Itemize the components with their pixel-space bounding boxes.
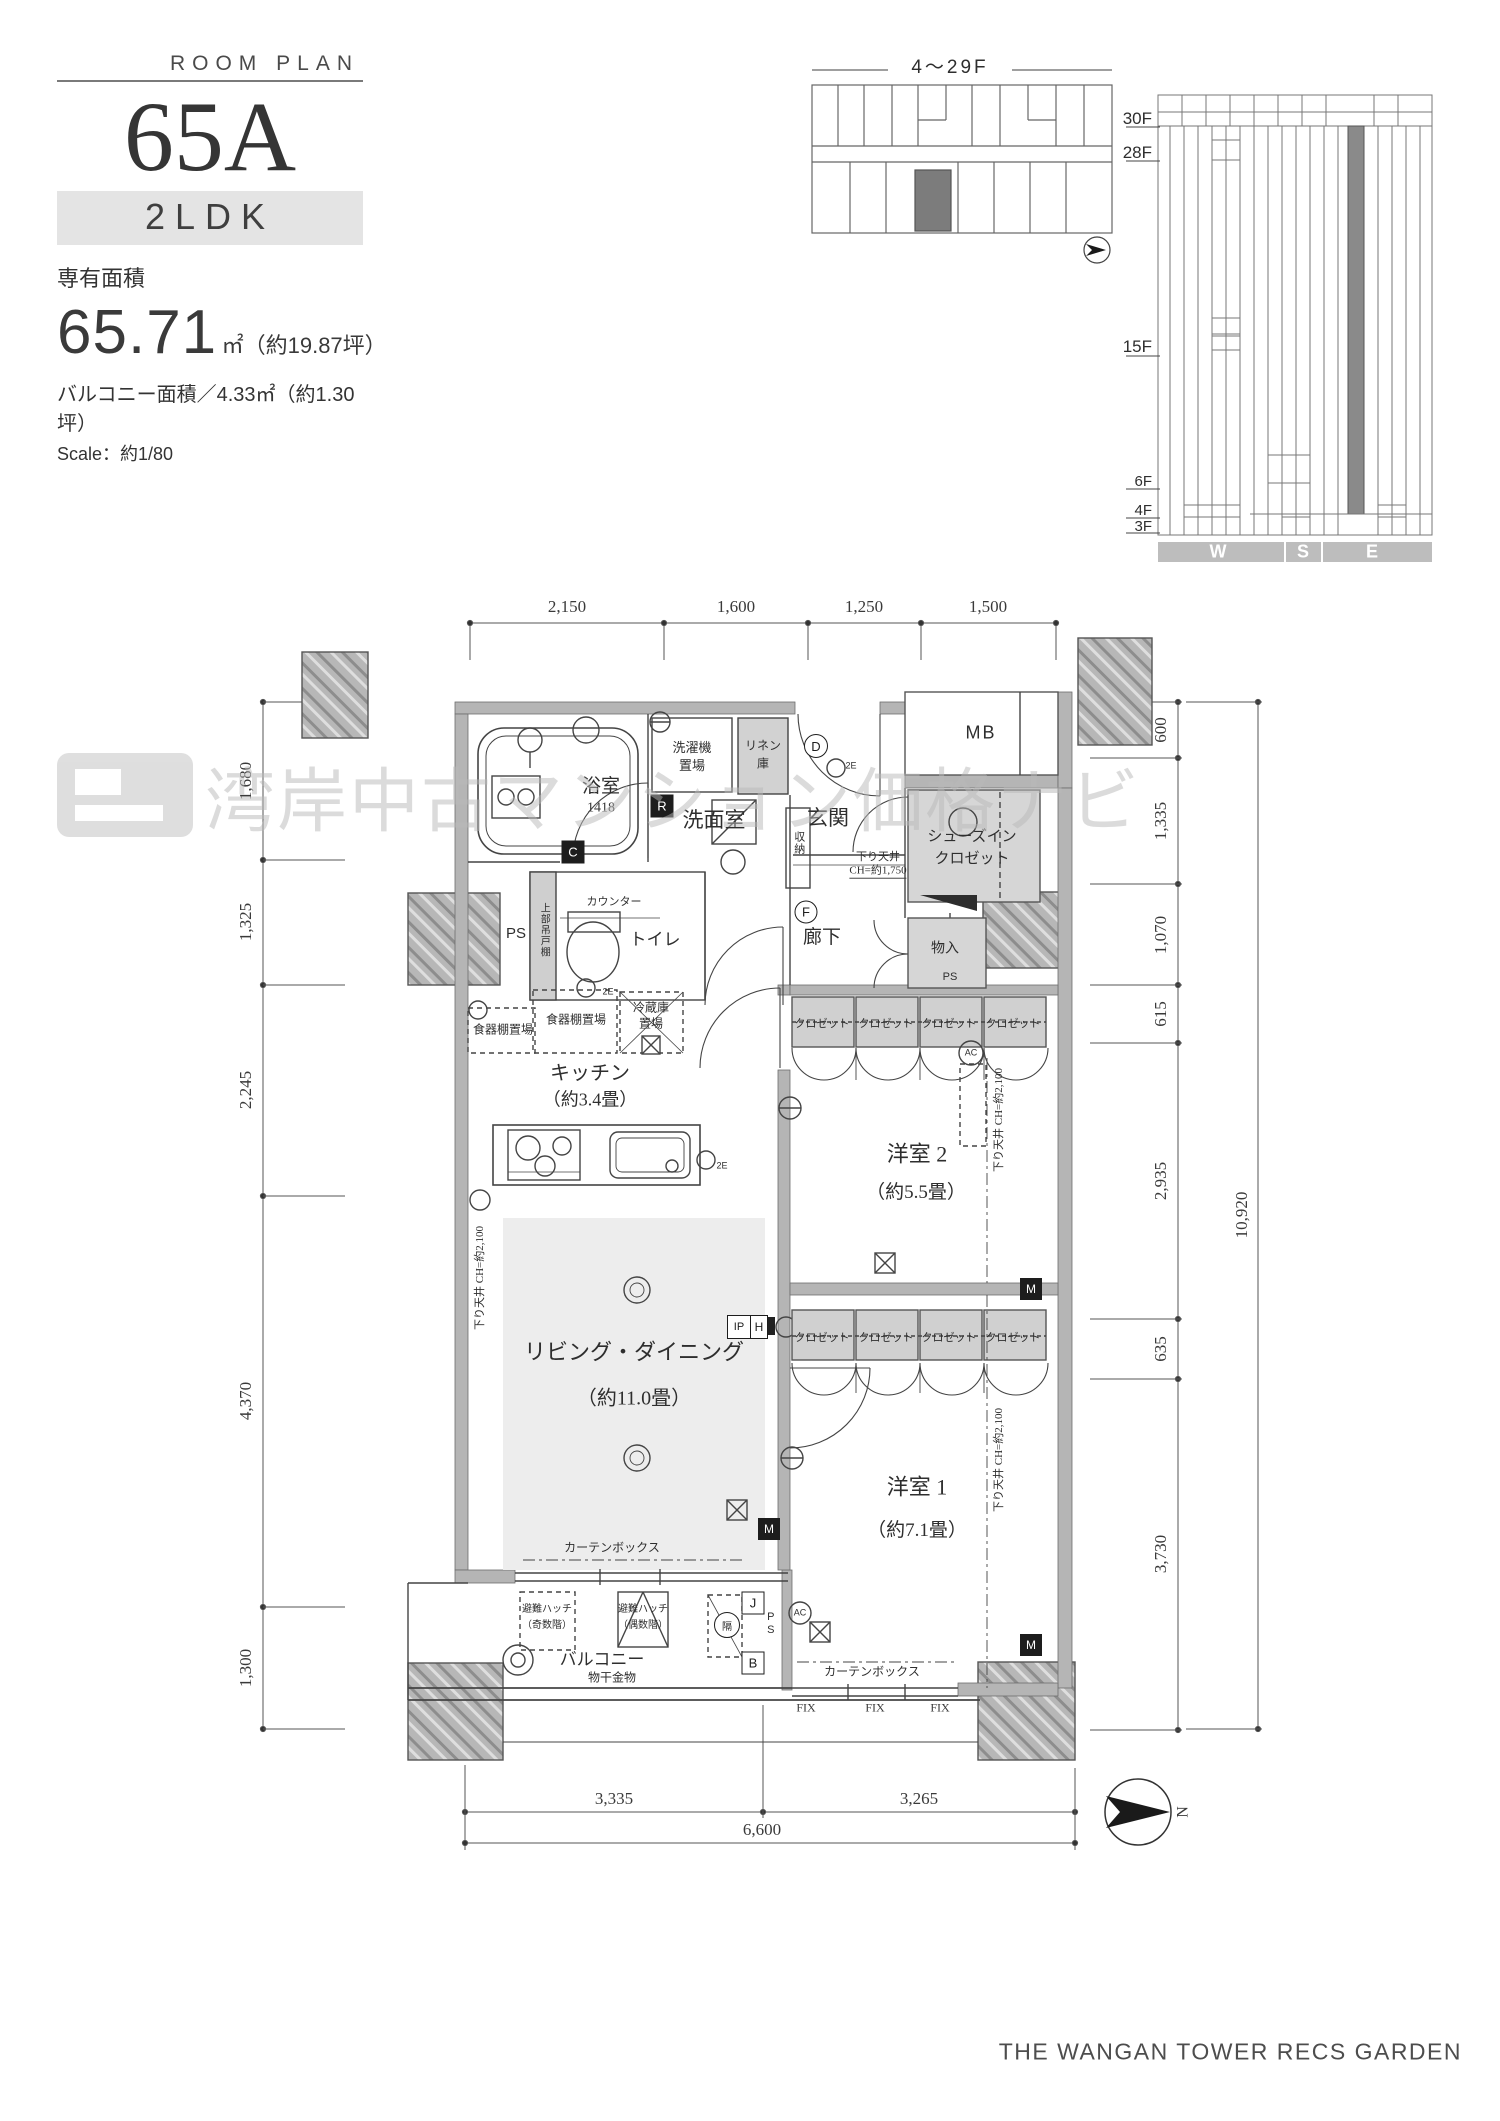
label-lowered-ceiling-2100-living: 下り天井 CH=約2,100 [475,1226,487,1330]
label-counter: カウンター [587,897,642,909]
scale-line: Scale：約1/80 [57,440,363,466]
label-lowered-ceiling-2100-bedroom1: 下り天井 CH=約2,100 [994,1408,1006,1512]
elevation-direction-e: E [1366,543,1378,562]
label-closet: クロゼット [922,1019,977,1031]
watermark-text: 湾岸中古マンション価格ナビ [205,746,1141,847]
label-lowered-ceiling-2100-bedroom2: 下り天井 CH=約2,100 [994,1068,1006,1172]
label-2e-toilet: 2E [602,987,613,996]
label-dish-shelf-1: 食器棚置場 [473,1024,533,1037]
key-plan-caption: 4～29F [911,58,988,78]
label-dish-shelf-2: 食器棚置場 [546,1014,606,1027]
dim-top-1: 2,150 [548,598,586,616]
label-curtain-box-bedroom1: カーテンボックス [824,1666,920,1679]
dim-right-1: 600 [1152,717,1170,743]
marker-ip: IP [727,1315,751,1339]
label-storage: 物入 [931,943,959,958]
dim-left-3: 2,245 [237,1071,255,1109]
label-kitchen-size: （約3.4畳） [543,1091,638,1110]
label-toilet: トイレ [630,931,681,949]
floor-plan-fixtures [408,692,1058,1742]
label-upper-cabinet: 上部吊戸棚 [538,903,549,958]
dim-right-5: 2,935 [1152,1162,1170,1200]
dim-left-5: 1,300 [237,1649,255,1687]
label-kitchen: キッチン [550,1064,630,1085]
compass-icon [1105,1779,1171,1845]
elevation-direction-s: S [1297,543,1309,562]
marker-ac-balcony: AC [794,1608,807,1617]
label-hatch-odd-1: 避難ハッチ [522,1605,572,1616]
marker-h: H [750,1315,768,1339]
dim-right-total: 10,920 [1233,1192,1251,1239]
marker-m-3: M [1020,1634,1042,1656]
footer-brand: THE WANGAN TOWER RECS GARDEN [999,2039,1462,2066]
label-fix-3: FIX [930,1702,949,1715]
dim-left-4: 4,370 [237,1382,255,1420]
dim-top-4: 1,500 [969,598,1007,616]
elevation-floor-15f: 15F [1123,338,1152,356]
layout-type-badge: 2LDK [57,191,363,245]
label-laundry-pole: 物干金物 [588,1672,636,1685]
label-balcony: バルコニー [560,1651,645,1669]
elevation-floor-4f: 4F [1134,503,1152,519]
label-bedroom1: 洋室 1 [887,1475,948,1498]
label-fix-1: FIX [796,1702,815,1715]
label-shoes-closet-2: クロゼット [934,852,1009,868]
label-fridge-2: 置場 [639,1018,663,1031]
label-lowered-ceiling-1750-1: 下り天井 [856,852,900,864]
dim-right-4: 615 [1152,1001,1170,1027]
label-closet: クロゼット [986,1019,1041,1031]
balcony-area-line: バルコニー面積／4.33㎡（約1.30坪） [57,378,363,436]
dim-top-3: 1,250 [845,598,883,616]
dim-top-2: 1,600 [717,598,755,616]
dim-right-7: 3,730 [1152,1535,1170,1573]
area-value: 65.71 [57,298,217,367]
marker-j: J [742,1592,765,1615]
marker-f: F [795,901,818,924]
marker-ac-bedroom2: AC [965,1048,978,1057]
label-ps-left: PS [506,926,526,942]
dim-bottom-1: 3,335 [595,1790,633,1808]
marker-m-1: M [758,1518,780,1540]
area-suffix: ㎡（約19.87坪） [222,333,387,358]
key-plan-compass-icon [1084,237,1110,263]
header: ROOM PLAN 65A 2LDK 専有面積 65.71 ㎡（約19.87坪）… [57,52,363,466]
dim-right-2: 1,335 [1152,802,1170,840]
label-ps-balcony: PS [764,1611,776,1637]
label-bedroom2: 洋室 2 [887,1142,948,1165]
label-hatch-even-2: （偶数階） [618,1621,668,1632]
key-plan-graphic [812,70,1112,263]
label-fix-2: FIX [865,1702,884,1715]
label-living-dining-size: （約11.0畳） [577,1389,691,1410]
marker-m-2: M [1020,1278,1042,1300]
label-closet: クロゼット [859,1333,914,1345]
label-curtain-box-living: カーテンボックス [564,1542,660,1555]
label-closet: クロゼット [922,1333,977,1345]
unit-name: 65A [57,84,363,189]
compass-north-label: N [1176,1806,1193,1818]
label-hatch-even-1: 避難ハッチ [618,1605,668,1616]
elevation-floor-3f: 3F [1134,519,1152,535]
label-mb: MB [966,724,997,743]
watermark-logo [57,753,193,837]
label-bedroom1-size: （約7.1畳） [867,1521,967,1541]
elevation-floor-28f: 28F [1123,144,1152,162]
label-corridor: 廊下 [803,928,841,948]
label-living-dining: リビング・ダイニング [524,1340,744,1363]
label-hatch-odd-2: （奇数階） [522,1621,572,1632]
label-closet: クロゼット [859,1019,914,1031]
label-fridge-1: 冷蔵庫 [633,1002,669,1015]
area-caption: 専有面積 [57,261,363,293]
label-closet: クロゼット [986,1333,1041,1345]
elevation-graphic [1126,95,1432,562]
label-bedroom2-size: （約5.5畳） [866,1183,966,1203]
marker-b: B [742,1652,765,1675]
floor-plan-page: ROOM PLAN 65A 2LDK 専有面積 65.71 ㎡（約19.87坪）… [0,0,1500,2121]
dim-right-6: 635 [1152,1336,1170,1362]
elevation-floor-30f: 30F [1123,110,1152,128]
dim-left-2: 1,325 [237,903,255,941]
dim-bottom-2: 3,265 [900,1790,938,1808]
marker-heki: 隔 [714,1612,740,1638]
area-row: 65.71 ㎡（約19.87坪） [57,297,363,368]
elevation-direction-w: W [1210,543,1227,562]
dim-bottom-total: 6,600 [743,1821,781,1839]
label-2e-kitchen: 2E [716,1161,727,1170]
label-lowered-ceiling-1750-2: CH=約1,750 [849,866,906,879]
label-ps-corridor: PS [943,972,958,984]
label-closet: クロゼット [795,1019,850,1031]
room-plan-eyebrow: ROOM PLAN [57,52,363,76]
dim-right-3: 1,070 [1152,916,1170,954]
elevation-floor-6f: 6F [1134,474,1152,490]
label-closet: クロゼット [795,1333,850,1345]
